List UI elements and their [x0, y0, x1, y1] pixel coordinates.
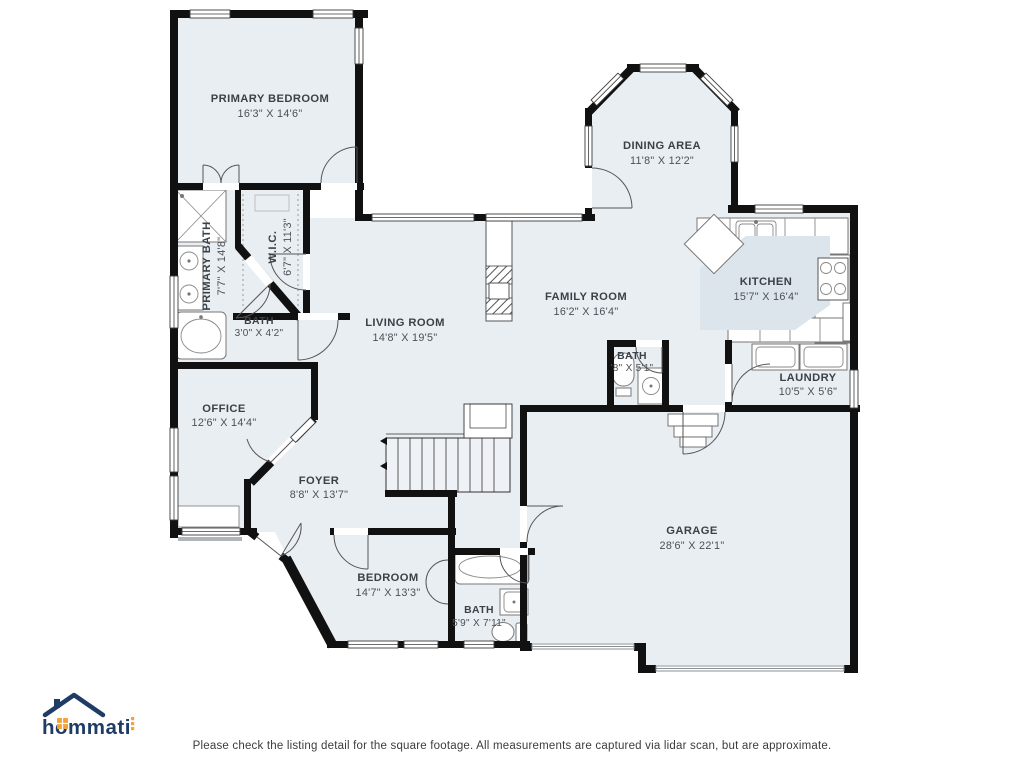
svg-text:BATH: BATH: [617, 351, 647, 362]
logo-roof-icon: [45, 695, 103, 715]
logo-chimney-icon: [54, 699, 60, 708]
garage-door-left: [532, 643, 634, 651]
svg-text:28'6" X 22'1": 28'6" X 22'1": [660, 540, 725, 552]
svg-text:'8" X 5'1": '8" X 5'1": [611, 363, 654, 374]
svg-text:14'8" X 19'5": 14'8" X 19'5": [373, 332, 438, 344]
bathtub-icon-lowerbath: [455, 551, 529, 584]
svg-text:W.I.C.: W.I.C.: [267, 231, 279, 264]
fireplace-icon: [486, 221, 512, 321]
svg-text:BATH: BATH: [244, 316, 274, 327]
svg-text:7'7" X 14'8": 7'7" X 14'8": [216, 237, 228, 296]
svg-text:BEDROOM: BEDROOM: [357, 572, 418, 584]
svg-text:8'8" X 13'7": 8'8" X 13'7": [290, 489, 349, 501]
svg-text:12'6" X 14'4": 12'6" X 14'4": [192, 417, 257, 429]
washer-dryer-icon: [752, 344, 847, 370]
logo-text: hommati: [42, 716, 131, 739]
svg-text:FAMILY ROOM: FAMILY ROOM: [545, 291, 627, 303]
svg-text:11'8" X 12'2": 11'8" X 12'2": [630, 155, 694, 167]
office-window-seat: [178, 506, 239, 527]
porch-edge: [178, 537, 242, 541]
stove-icon: [818, 258, 848, 300]
svg-text:16'3" X 14'6": 16'3" X 14'6": [238, 108, 303, 120]
svg-text:GARAGE: GARAGE: [666, 525, 718, 537]
svg-text:OFFICE: OFFICE: [202, 403, 246, 415]
hommati-logo: hommati: [42, 695, 134, 739]
svg-text:3'0" X 4'2": 3'0" X 4'2": [235, 328, 284, 339]
svg-text:BATH: BATH: [464, 605, 494, 616]
svg-text:FOYER: FOYER: [299, 475, 340, 487]
svg-text:16'2" X 16'4": 16'2" X 16'4": [554, 306, 619, 318]
svg-text:15'7" X 16'4": 15'7" X 16'4": [734, 291, 799, 303]
svg-text:PRIMARY BEDROOM: PRIMARY BEDROOM: [211, 93, 330, 105]
floor-plan-page: PRIMARY BEDROOM 16'3" X 14'6" PRIMARY BA…: [0, 0, 1024, 768]
svg-text:6'7" X 11'3": 6'7" X 11'3": [282, 218, 294, 276]
svg-text:KITCHEN: KITCHEN: [740, 276, 793, 288]
double-vanity-icon: [176, 246, 203, 310]
svg-text:14'7" X 13'3": 14'7" X 13'3": [356, 587, 421, 599]
svg-text:LAUNDRY: LAUNDRY: [779, 372, 836, 384]
garage-door-right: [656, 665, 844, 673]
logo-accent: [131, 717, 134, 730]
bathtub-icon: [176, 312, 226, 359]
svg-text:DINING AREA: DINING AREA: [623, 140, 701, 152]
svg-text:PRIMARY BATH: PRIMARY BATH: [201, 221, 213, 310]
svg-text:5'9" X 7'11": 5'9" X 7'11": [452, 618, 506, 629]
svg-text:LIVING ROOM: LIVING ROOM: [365, 317, 445, 329]
floor-plan-drawing: PRIMARY BEDROOM 16'3" X 14'6" PRIMARY BA…: [0, 0, 1024, 768]
svg-text:10'5" X 5'6": 10'5" X 5'6": [779, 386, 838, 398]
disclaimer-text: Please check the listing detail for the …: [0, 740, 1024, 752]
logo-window-icon: [57, 718, 68, 729]
